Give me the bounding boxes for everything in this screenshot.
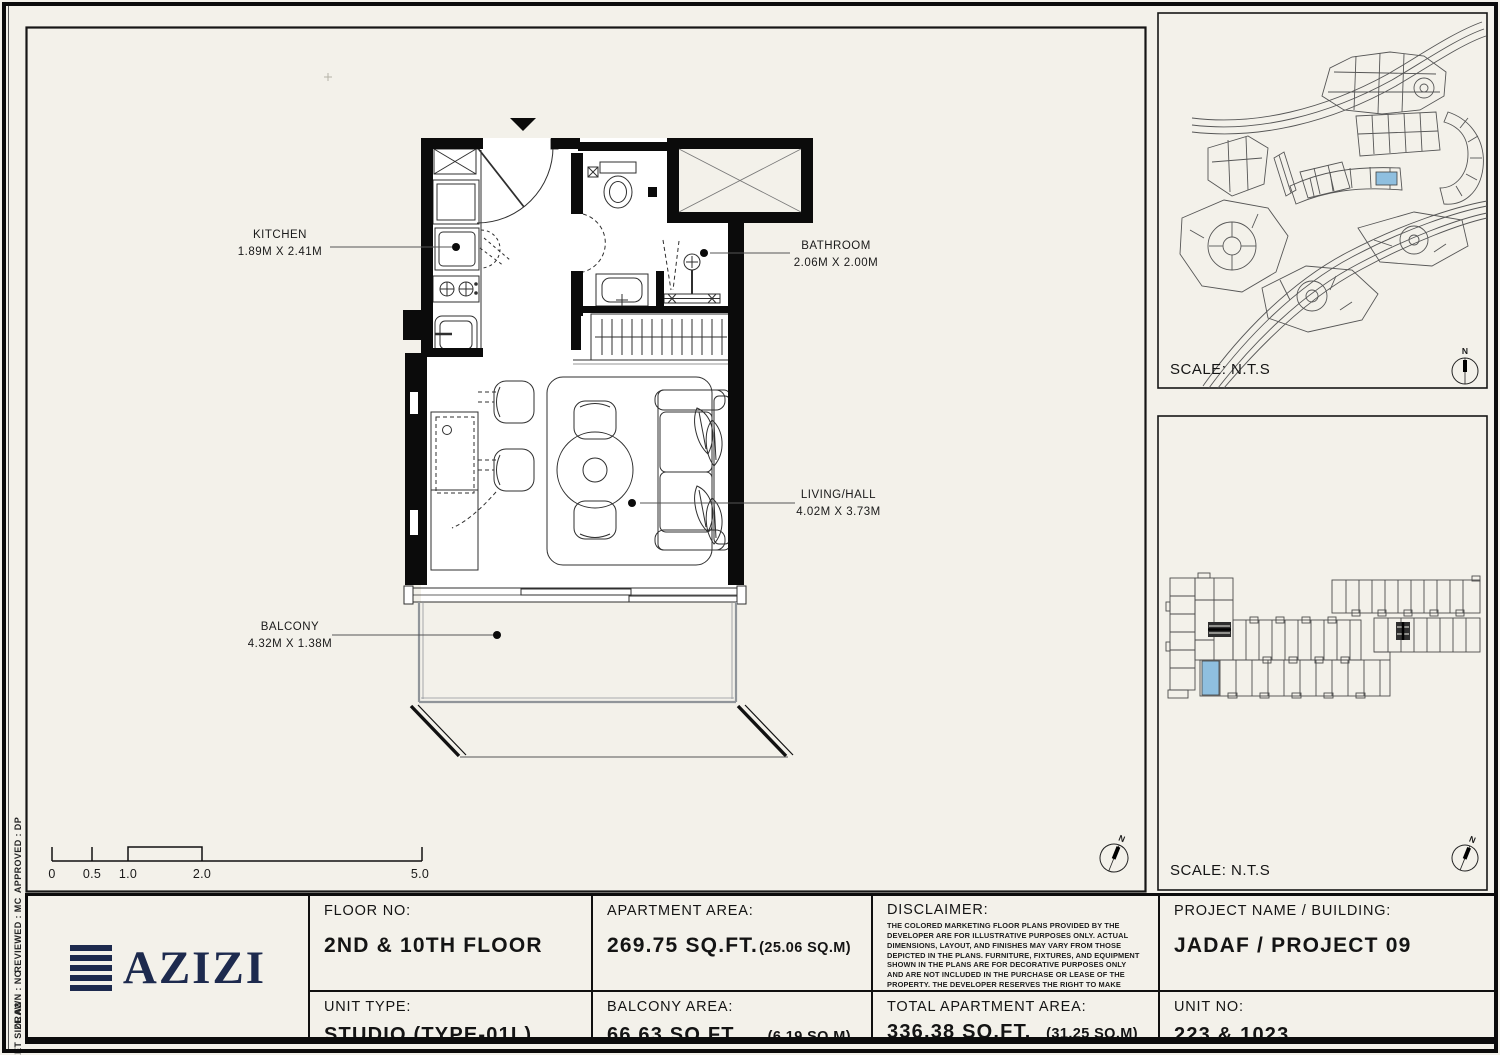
site-clusters	[1180, 52, 1483, 332]
svg-text:N: N	[1117, 833, 1126, 845]
balcony-area-cell: BALCONY AREA: 66.63 SQ.FT. (6.19 SQ.M)	[591, 990, 871, 1037]
svg-text:2.0: 2.0	[193, 867, 211, 881]
room-name: LIVING/HALL	[776, 487, 901, 504]
scale-bar	[52, 847, 422, 861]
disclaimer-text: THE COLORED MARKETING FLOOR PLANS PROVID…	[887, 921, 1144, 990]
total-area-metric: (31.25 SQ.M)	[1046, 1026, 1144, 1037]
disclaimer-label: DISCLAIMER:	[887, 902, 1144, 918]
registration-cross	[324, 73, 332, 81]
site-roads	[1192, 22, 1487, 388]
reviewed-note: REVIEWED : MC	[13, 897, 23, 972]
room-name: BALCONY	[230, 619, 350, 636]
site-scale-label: SCALE: N.T.S	[1170, 361, 1270, 378]
north-compass-icon: N	[1096, 829, 1137, 877]
svg-text:0: 0	[48, 867, 55, 881]
apartment-area-value: 269.75 SQ.FT.	[607, 934, 758, 958]
room-name: BATHROOM	[776, 238, 896, 255]
unit-no-label: UNIT NO:	[1174, 999, 1480, 1015]
apartment-area-cell: APARTMENT AREA: 269.75 SQ.FT. (25.06 SQ.…	[591, 896, 871, 990]
north-compass-icon: N	[1448, 830, 1486, 875]
apartment-area-label: APARTMENT AREA:	[607, 903, 857, 919]
azizi-logo: AZIZI	[28, 896, 308, 1037]
stair-cores	[1208, 622, 1410, 640]
unit-type-value: STUDIO (TYPE-01L)	[324, 1024, 577, 1037]
project-name-value: JADAF / PROJECT 09	[1174, 934, 1480, 958]
unit-type-cell: UNIT TYPE: STUDIO (TYPE-01L)	[308, 990, 591, 1037]
svg-text:5.0: 5.0	[411, 867, 429, 881]
highlighted-unit	[1202, 661, 1219, 695]
svg-text:N: N	[1462, 346, 1468, 356]
north-compass-icon: N	[1452, 346, 1478, 384]
site-map-drawing: N	[1157, 12, 1488, 389]
kitchen-label: KITCHEN 1.89M X 2.41M	[225, 227, 335, 262]
room-dims: 2.06M X 2.00M	[776, 255, 896, 272]
living-hall-label: LIVING/HALL 4.02M X 3.73M	[776, 487, 901, 522]
balcony-area-label: BALCONY AREA:	[607, 999, 857, 1015]
approved-note: APPROVED : DP	[13, 817, 23, 893]
total-area-value: 336.38 SQ.FT.	[887, 1021, 1032, 1037]
highlighted-plot	[1376, 172, 1397, 185]
floorplan-sheet: APPROVED : DP REVIEWED : MC DRAWN : NC S…	[0, 0, 1500, 1055]
unit-no-value: 223 & 1023	[1174, 1024, 1480, 1037]
disclaimer-cell: DISCLAIMER: THE COLORED MARKETING FLOOR …	[871, 896, 1158, 990]
total-area-cell: TOTAL APARTMENT AREA: 336.38 SQ.FT. (31.…	[871, 990, 1158, 1037]
entry-arrow	[510, 118, 536, 131]
apartment-area-metric: (25.06 SQ.M)	[759, 940, 857, 956]
floor-plan-drawing: 0 0.5 1.0 2.0 5.0 N	[25, 26, 1147, 893]
project-name-label: PROJECT NAME / BUILDING:	[1174, 903, 1480, 919]
room-name: KITCHEN	[225, 227, 335, 244]
floor-no-value: 2ND & 10TH FLOOR	[324, 934, 577, 958]
project-name-cell: PROJECT NAME / BUILDING: JADAF / PROJECT…	[1158, 896, 1494, 990]
floor-no-label: FLOOR NO:	[324, 903, 577, 919]
sheet-size-note: SHEET SIZE A3	[13, 1002, 23, 1055]
unit-type-label: UNIT TYPE:	[324, 999, 577, 1015]
balcony-area-metric: (6.19 SQ.M)	[768, 1029, 857, 1037]
svg-text:0.5: 0.5	[83, 867, 101, 881]
building-key-plan-drawing: N	[1157, 415, 1488, 891]
room-dims: 4.02M X 3.73M	[776, 504, 901, 521]
svg-text:N: N	[1468, 834, 1477, 846]
balcony-area-value: 66.63 SQ.FT.	[607, 1024, 739, 1037]
balcony-projection	[411, 705, 793, 757]
room-dims: 4.32M X 1.38M	[230, 636, 350, 653]
bathroom-label: BATHROOM 2.06M X 2.00M	[776, 238, 896, 273]
balcony-label: BALCONY 4.32M X 1.38M	[230, 619, 350, 654]
room-dims: 1.89M X 2.41M	[225, 244, 335, 261]
unit-no-cell: UNIT NO: 223 & 1023	[1158, 990, 1494, 1037]
sheet-notes-strip: APPROVED : DP REVIEWED : MC DRAWN : NC S…	[8, 6, 26, 1049]
total-area-label: TOTAL APARTMENT AREA:	[887, 999, 1144, 1015]
balcony-railing	[419, 602, 736, 702]
building-scale-label: SCALE: N.T.S	[1170, 862, 1270, 879]
scale-bar-labels: 0 0.5 1.0 2.0 5.0	[48, 867, 429, 881]
floor-no-cell: FLOOR NO: 2ND & 10TH FLOOR	[308, 896, 591, 990]
title-block: AZIZI FLOOR NO: 2ND & 10TH FLOOR APARTME…	[25, 893, 1497, 1044]
azizi-logo-text: AZIZI	[123, 945, 266, 992]
azizi-logo-bars-icon	[70, 945, 112, 991]
svg-text:1.0: 1.0	[119, 867, 137, 881]
